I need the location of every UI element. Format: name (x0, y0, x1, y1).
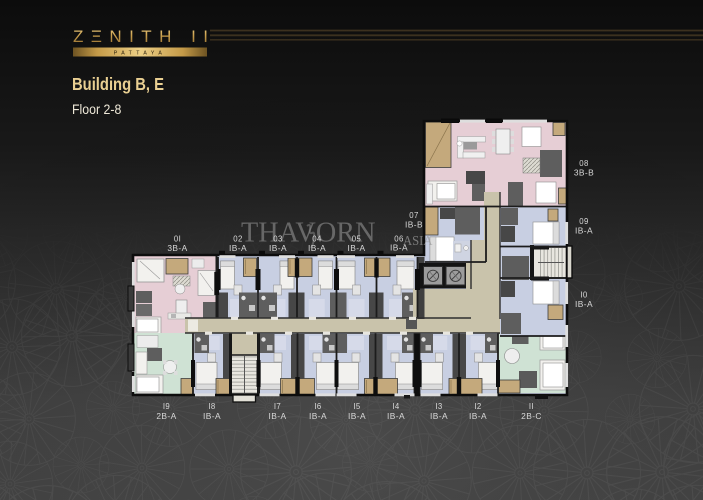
svg-text:II: II (529, 402, 534, 411)
svg-text:IB-A: IB-A (269, 411, 287, 421)
svg-text:IB-A: IB-A (269, 243, 287, 253)
svg-text:IB-A: IB-A (575, 299, 593, 309)
svg-text:IB-A: IB-A (229, 243, 247, 253)
svg-text:I3: I3 (435, 402, 442, 411)
svg-text:I9: I9 (163, 402, 170, 411)
svg-text:IB-A: IB-A (390, 243, 408, 253)
svg-text:IB-B: IB-B (405, 220, 423, 230)
svg-text:2B-A: 2B-A (156, 411, 176, 421)
svg-text:IB-A: IB-A (203, 411, 221, 421)
svg-text:3B-B: 3B-B (574, 168, 594, 178)
svg-text:IB-A: IB-A (575, 226, 593, 236)
svg-text:I4: I4 (392, 402, 400, 411)
svg-text:IB-A: IB-A (430, 411, 448, 421)
svg-text:IB-A: IB-A (387, 411, 405, 421)
svg-text:I2: I2 (474, 402, 481, 411)
svg-text:I6: I6 (314, 402, 321, 411)
svg-text:3B-A: 3B-A (167, 243, 187, 253)
svg-text:I8: I8 (208, 402, 215, 411)
svg-text:I5: I5 (353, 402, 361, 411)
svg-text:2B-C: 2B-C (521, 411, 542, 421)
svg-text:IB-A: IB-A (348, 243, 366, 253)
svg-text:IB-A: IB-A (308, 243, 326, 253)
svg-text:IB-A: IB-A (348, 411, 366, 421)
svg-text:IB-A: IB-A (469, 411, 487, 421)
svg-text:I7: I7 (274, 402, 281, 411)
svg-text:IB-A: IB-A (309, 411, 327, 421)
